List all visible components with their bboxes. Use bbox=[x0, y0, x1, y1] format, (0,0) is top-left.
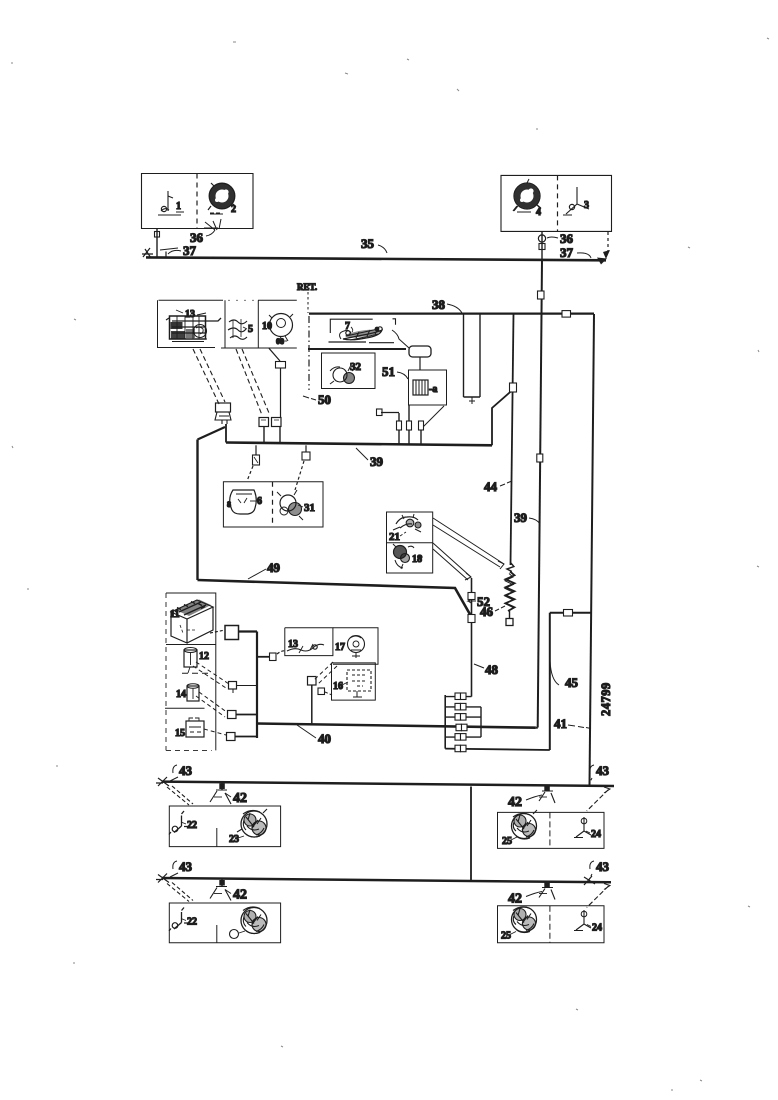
svg-text:37: 37 bbox=[183, 243, 197, 258]
svg-text:49: 49 bbox=[267, 560, 281, 575]
svg-text:4: 4 bbox=[536, 207, 541, 218]
svg-text:8: 8 bbox=[227, 500, 231, 509]
svg-text:43: 43 bbox=[179, 859, 193, 874]
svg-text:48: 48 bbox=[485, 662, 499, 677]
svg-text:25: 25 bbox=[502, 836, 512, 847]
svg-text:43: 43 bbox=[596, 763, 610, 778]
svg-text:37: 37 bbox=[560, 245, 574, 260]
svg-text:18: 18 bbox=[412, 554, 422, 565]
svg-text:45: 45 bbox=[565, 675, 579, 690]
svg-text:15: 15 bbox=[175, 728, 185, 739]
svg-text:42: 42 bbox=[508, 892, 522, 907]
svg-text:35: 35 bbox=[361, 236, 375, 251]
svg-text:50: 50 bbox=[318, 392, 331, 407]
svg-text:32: 32 bbox=[350, 361, 362, 373]
svg-text:2: 2 bbox=[231, 204, 236, 215]
svg-text:43: 43 bbox=[179, 763, 193, 778]
svg-text:43: 43 bbox=[596, 859, 610, 874]
svg-text:22: 22 bbox=[187, 917, 197, 928]
svg-text:1: 1 bbox=[176, 201, 181, 212]
svg-text:39: 39 bbox=[514, 510, 528, 525]
svg-text:10: 10 bbox=[262, 321, 272, 332]
svg-text:13: 13 bbox=[288, 639, 298, 650]
svg-text:-a: -a bbox=[429, 384, 437, 395]
svg-text:42: 42 bbox=[233, 791, 247, 806]
svg-text:22: 22 bbox=[187, 820, 197, 831]
svg-text:25: 25 bbox=[501, 931, 511, 942]
svg-text:RET.: RET. bbox=[297, 282, 317, 292]
svg-text:24: 24 bbox=[592, 923, 602, 934]
svg-text:44: 44 bbox=[484, 479, 498, 494]
svg-text:6: 6 bbox=[257, 496, 262, 507]
svg-text:24799: 24799 bbox=[599, 682, 613, 716]
svg-text:24: 24 bbox=[591, 829, 601, 840]
svg-text:3: 3 bbox=[584, 200, 589, 211]
svg-text:21: 21 bbox=[389, 531, 400, 543]
svg-text:41: 41 bbox=[554, 716, 567, 731]
svg-text:51: 51 bbox=[382, 364, 395, 379]
svg-text:11: 11 bbox=[170, 609, 179, 620]
svg-text:36: 36 bbox=[560, 231, 574, 246]
svg-text:31: 31 bbox=[304, 502, 315, 514]
svg-text:13: 13 bbox=[185, 309, 195, 320]
svg-text:7: 7 bbox=[345, 321, 350, 332]
svg-text:17: 17 bbox=[335, 642, 345, 653]
svg-text:40: 40 bbox=[318, 731, 331, 746]
svg-text:46: 46 bbox=[480, 604, 494, 619]
svg-text:5: 5 bbox=[248, 324, 253, 335]
svg-text:16: 16 bbox=[333, 681, 343, 692]
svg-text:39: 39 bbox=[370, 454, 384, 469]
svg-text:08: 08 bbox=[276, 337, 284, 346]
svg-text:38: 38 bbox=[432, 297, 446, 312]
svg-text:14: 14 bbox=[176, 689, 186, 700]
svg-text:12: 12 bbox=[199, 651, 209, 662]
svg-text:23: 23 bbox=[229, 834, 239, 845]
svg-text:42: 42 bbox=[233, 888, 247, 903]
svg-text:42: 42 bbox=[508, 795, 522, 810]
